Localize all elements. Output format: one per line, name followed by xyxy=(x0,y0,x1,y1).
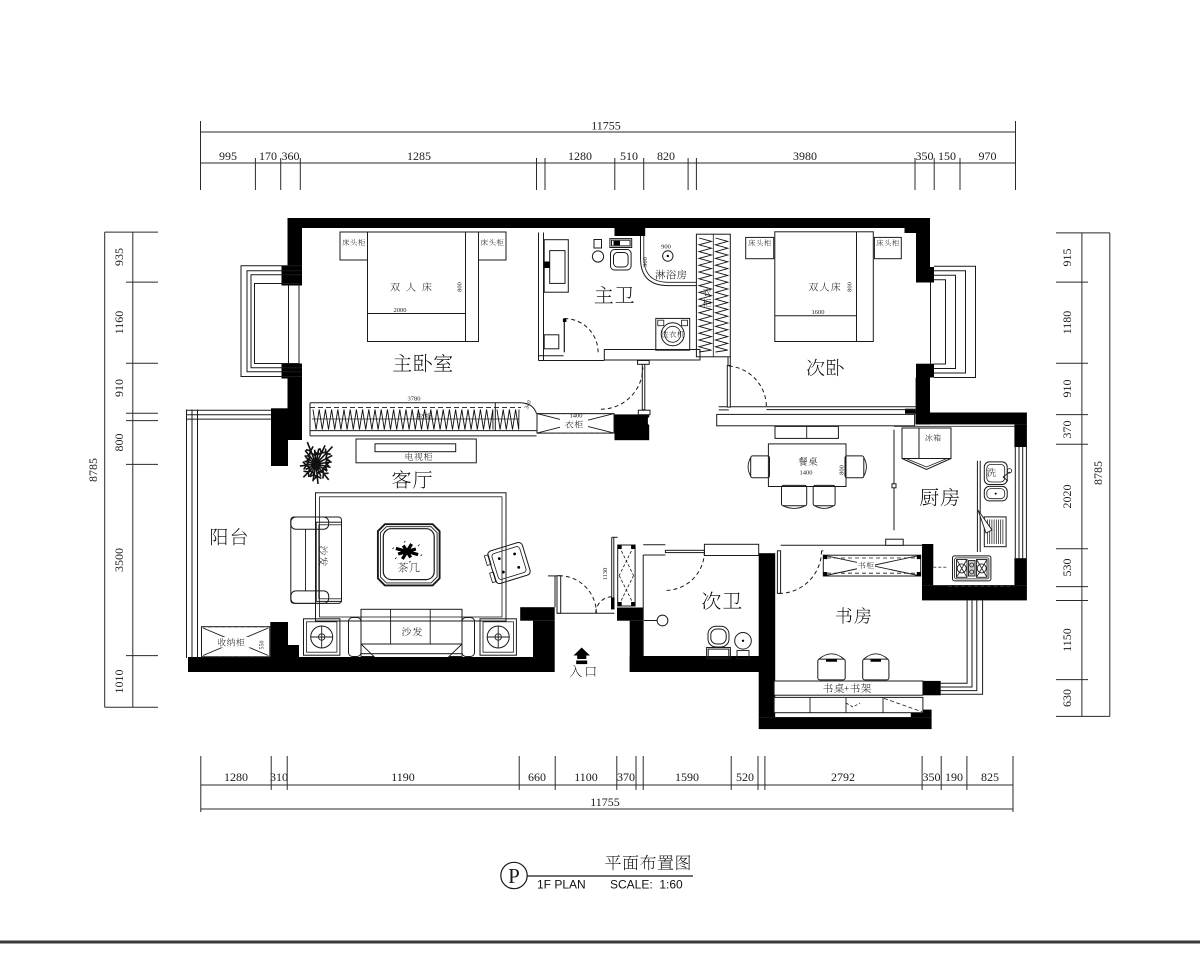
svg-text:+: + xyxy=(844,684,849,694)
svg-text:630: 630 xyxy=(1060,689,1074,707)
svg-text:1010: 1010 xyxy=(112,670,126,694)
svg-text:2792: 2792 xyxy=(831,770,855,784)
svg-text:1280: 1280 xyxy=(224,770,248,784)
svg-text:8785: 8785 xyxy=(86,458,100,482)
svg-text:660: 660 xyxy=(528,770,546,784)
svg-text:1590: 1590 xyxy=(675,770,699,784)
svg-text:935: 935 xyxy=(112,248,126,266)
svg-text:1600: 1600 xyxy=(812,309,825,316)
svg-text:995: 995 xyxy=(219,149,237,163)
svg-text:530: 530 xyxy=(1060,559,1074,577)
svg-text:P: P xyxy=(508,864,520,888)
svg-text:800: 800 xyxy=(112,434,126,452)
svg-text:3780: 3780 xyxy=(408,396,421,403)
svg-text:800: 800 xyxy=(847,282,854,292)
svg-text:800: 800 xyxy=(457,282,464,292)
svg-text:360: 360 xyxy=(282,149,300,163)
svg-text:825: 825 xyxy=(981,770,999,784)
svg-text:900: 900 xyxy=(642,257,649,267)
svg-text:3980: 3980 xyxy=(793,149,817,163)
svg-text:11755: 11755 xyxy=(590,795,620,809)
svg-text:1285: 1285 xyxy=(407,149,431,163)
svg-text:1160: 1160 xyxy=(112,311,126,335)
svg-text:150: 150 xyxy=(938,149,956,163)
svg-text:310: 310 xyxy=(270,770,288,784)
svg-text:820: 820 xyxy=(657,149,675,163)
svg-text:520: 520 xyxy=(736,770,754,784)
svg-text:1400: 1400 xyxy=(570,413,583,420)
svg-text:510: 510 xyxy=(620,149,638,163)
svg-text:900: 900 xyxy=(661,244,671,251)
svg-text:350: 350 xyxy=(916,149,934,163)
svg-text:3500: 3500 xyxy=(112,548,126,572)
svg-text:1400: 1400 xyxy=(800,470,813,477)
svg-text:1150: 1150 xyxy=(1060,628,1074,652)
svg-text:1130: 1130 xyxy=(602,568,609,581)
svg-text:1F PLAN: 1F PLAN xyxy=(537,878,586,892)
svg-text:2020: 2020 xyxy=(1060,485,1074,509)
svg-text:910: 910 xyxy=(1060,380,1074,398)
svg-text:1100: 1100 xyxy=(574,770,598,784)
svg-text:190: 190 xyxy=(945,770,963,784)
svg-text:1180: 1180 xyxy=(1060,311,1074,335)
svg-text:350: 350 xyxy=(923,770,941,784)
svg-text:970: 970 xyxy=(979,149,997,163)
svg-text:2000: 2000 xyxy=(394,307,407,314)
svg-text:1190: 1190 xyxy=(391,770,415,784)
svg-text:800: 800 xyxy=(839,465,846,475)
svg-text:910: 910 xyxy=(112,379,126,397)
svg-text:370: 370 xyxy=(617,770,635,784)
svg-text:11755: 11755 xyxy=(591,119,621,133)
svg-text:170: 170 xyxy=(259,149,277,163)
svg-text:8785: 8785 xyxy=(1091,461,1105,485)
svg-text:1280: 1280 xyxy=(568,149,592,163)
svg-text:SCALE: 1:60: SCALE: 1:60 xyxy=(610,878,683,892)
svg-text:370: 370 xyxy=(1060,421,1074,439)
svg-text:915: 915 xyxy=(1060,249,1074,267)
svg-text:550: 550 xyxy=(260,641,266,650)
